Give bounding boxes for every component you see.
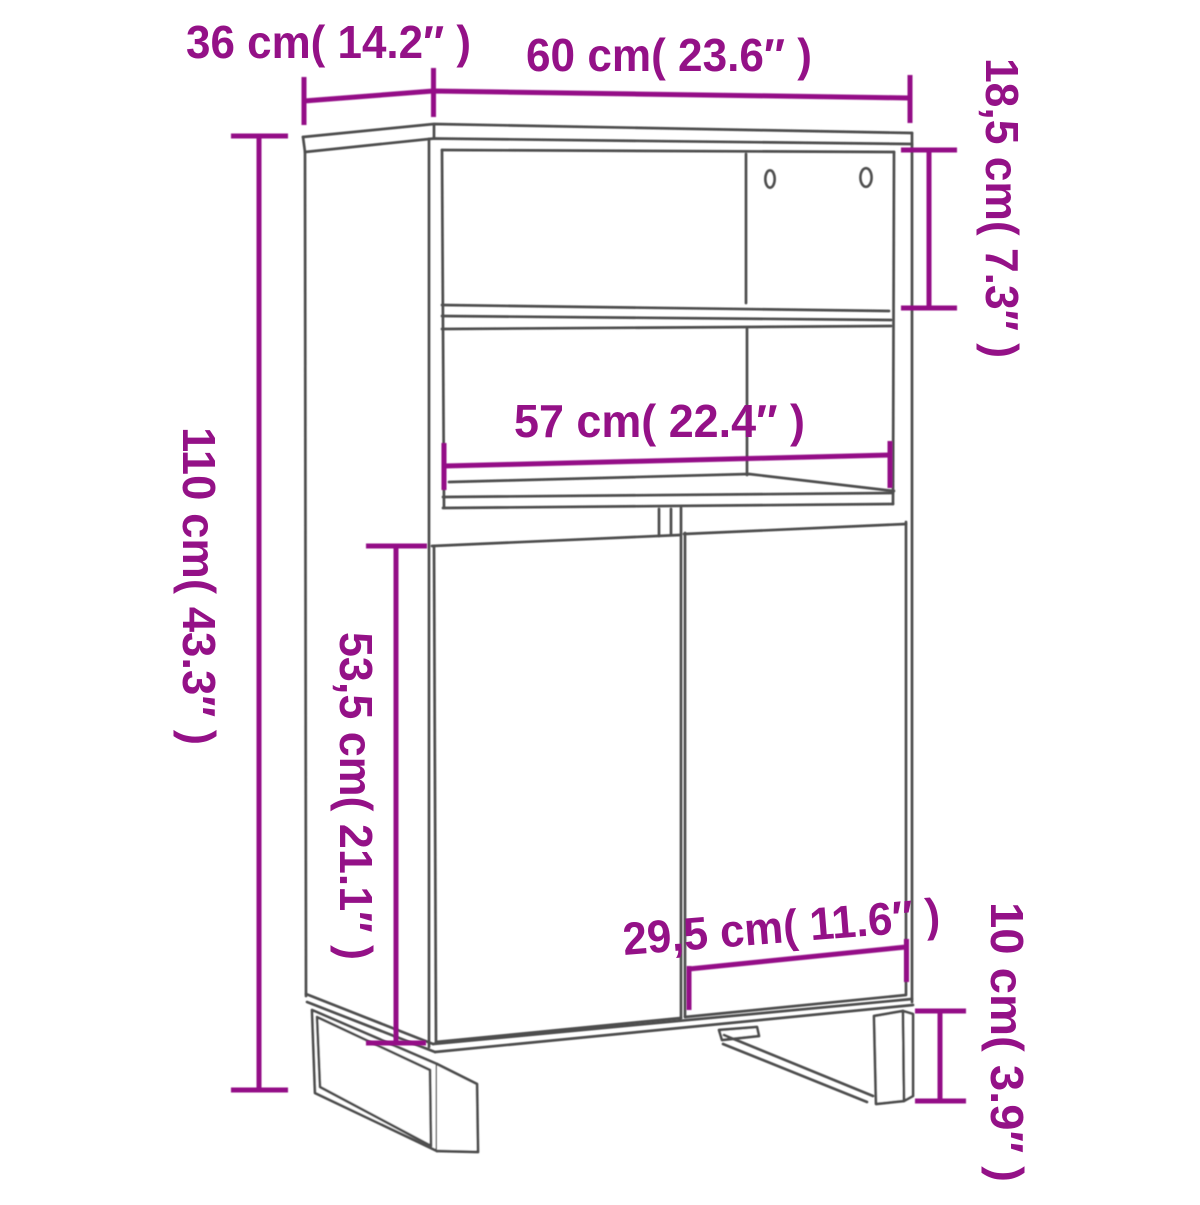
svg-text:18,5 cm( 7.3″ ): 18,5 cm( 7.3″ ) [976, 58, 1028, 358]
svg-text:57 cm( 22.4″ ): 57 cm( 22.4″ ) [514, 395, 805, 447]
svg-text:36 cm( 14.2″ ): 36 cm( 14.2″ ) [186, 16, 471, 68]
svg-text:110 cm( 43.3″ ): 110 cm( 43.3″ ) [173, 427, 225, 745]
svg-text:10 cm( 3.9″ ): 10 cm( 3.9″ ) [981, 902, 1033, 1182]
svg-text:60 cm( 23.6″ ): 60 cm( 23.6″ ) [526, 29, 812, 81]
svg-text:53,5 cm( 21.1″ ): 53,5 cm( 21.1″ ) [330, 632, 382, 960]
